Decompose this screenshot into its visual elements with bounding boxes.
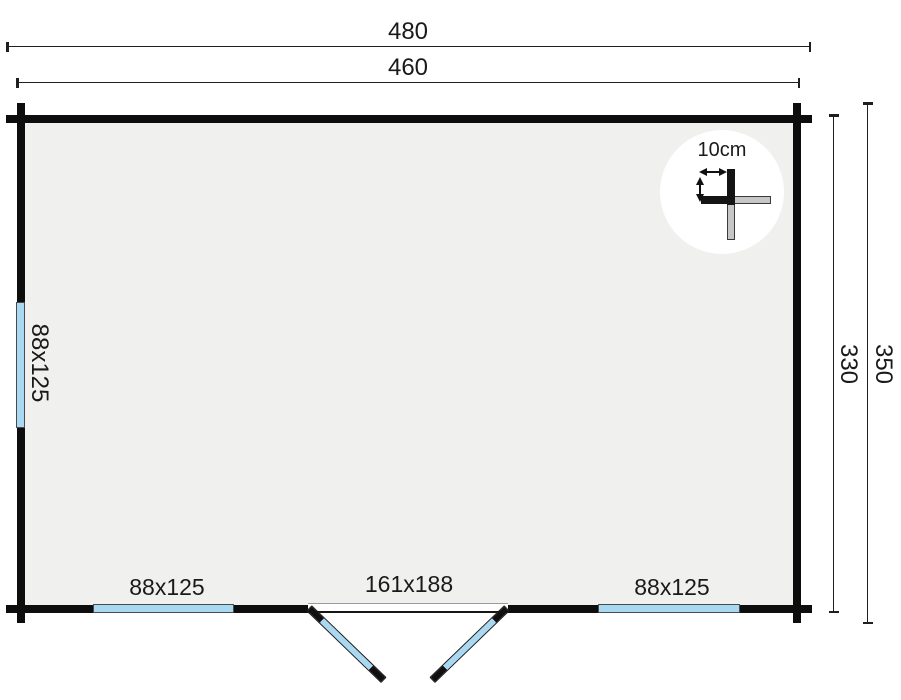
vertical-arrow-top-head xyxy=(696,177,704,185)
window-bottom-left xyxy=(93,604,234,613)
window-bottom-left-size-label: 88x125 xyxy=(129,576,204,599)
window-bottom-right-size-label: 88x125 xyxy=(634,576,709,599)
wall-thickness-label: 10cm xyxy=(698,140,747,160)
dimension-label-inner-width: 460 xyxy=(388,56,428,80)
window-left xyxy=(16,302,25,428)
door-leaf-right xyxy=(429,605,509,683)
door-opening xyxy=(308,603,508,613)
dimension-line-total-width xyxy=(7,46,810,47)
dimension-line-total-depth xyxy=(867,103,868,623)
dimension-label-total-width: 480 xyxy=(388,20,428,44)
vertical-arrow-bottom-head xyxy=(696,194,704,202)
wall-right xyxy=(793,103,801,623)
window-left-size-label: 88x125 xyxy=(27,324,51,403)
wall-detail-circle: 10cm xyxy=(660,130,784,254)
window-bottom-right xyxy=(598,604,740,613)
door-leaf-left xyxy=(306,605,386,683)
dimension-line-inner-width xyxy=(17,82,799,83)
horizontal-arrow-right-head xyxy=(719,168,727,176)
dimension-line-inner-depth xyxy=(833,115,834,612)
door-size-label: 161x188 xyxy=(365,573,453,596)
detail-measure-arrows xyxy=(688,162,740,204)
wall-top xyxy=(6,115,812,123)
floor-plan-canvas: 480 460 330 350 88x125 88x125 88x125 161… xyxy=(0,0,901,700)
dimension-label-total-depth: 350 xyxy=(871,344,895,384)
detail-log-vertical-gray xyxy=(727,204,735,240)
dimension-label-inner-depth: 330 xyxy=(836,344,860,384)
horizontal-arrow-left-head xyxy=(699,168,707,176)
